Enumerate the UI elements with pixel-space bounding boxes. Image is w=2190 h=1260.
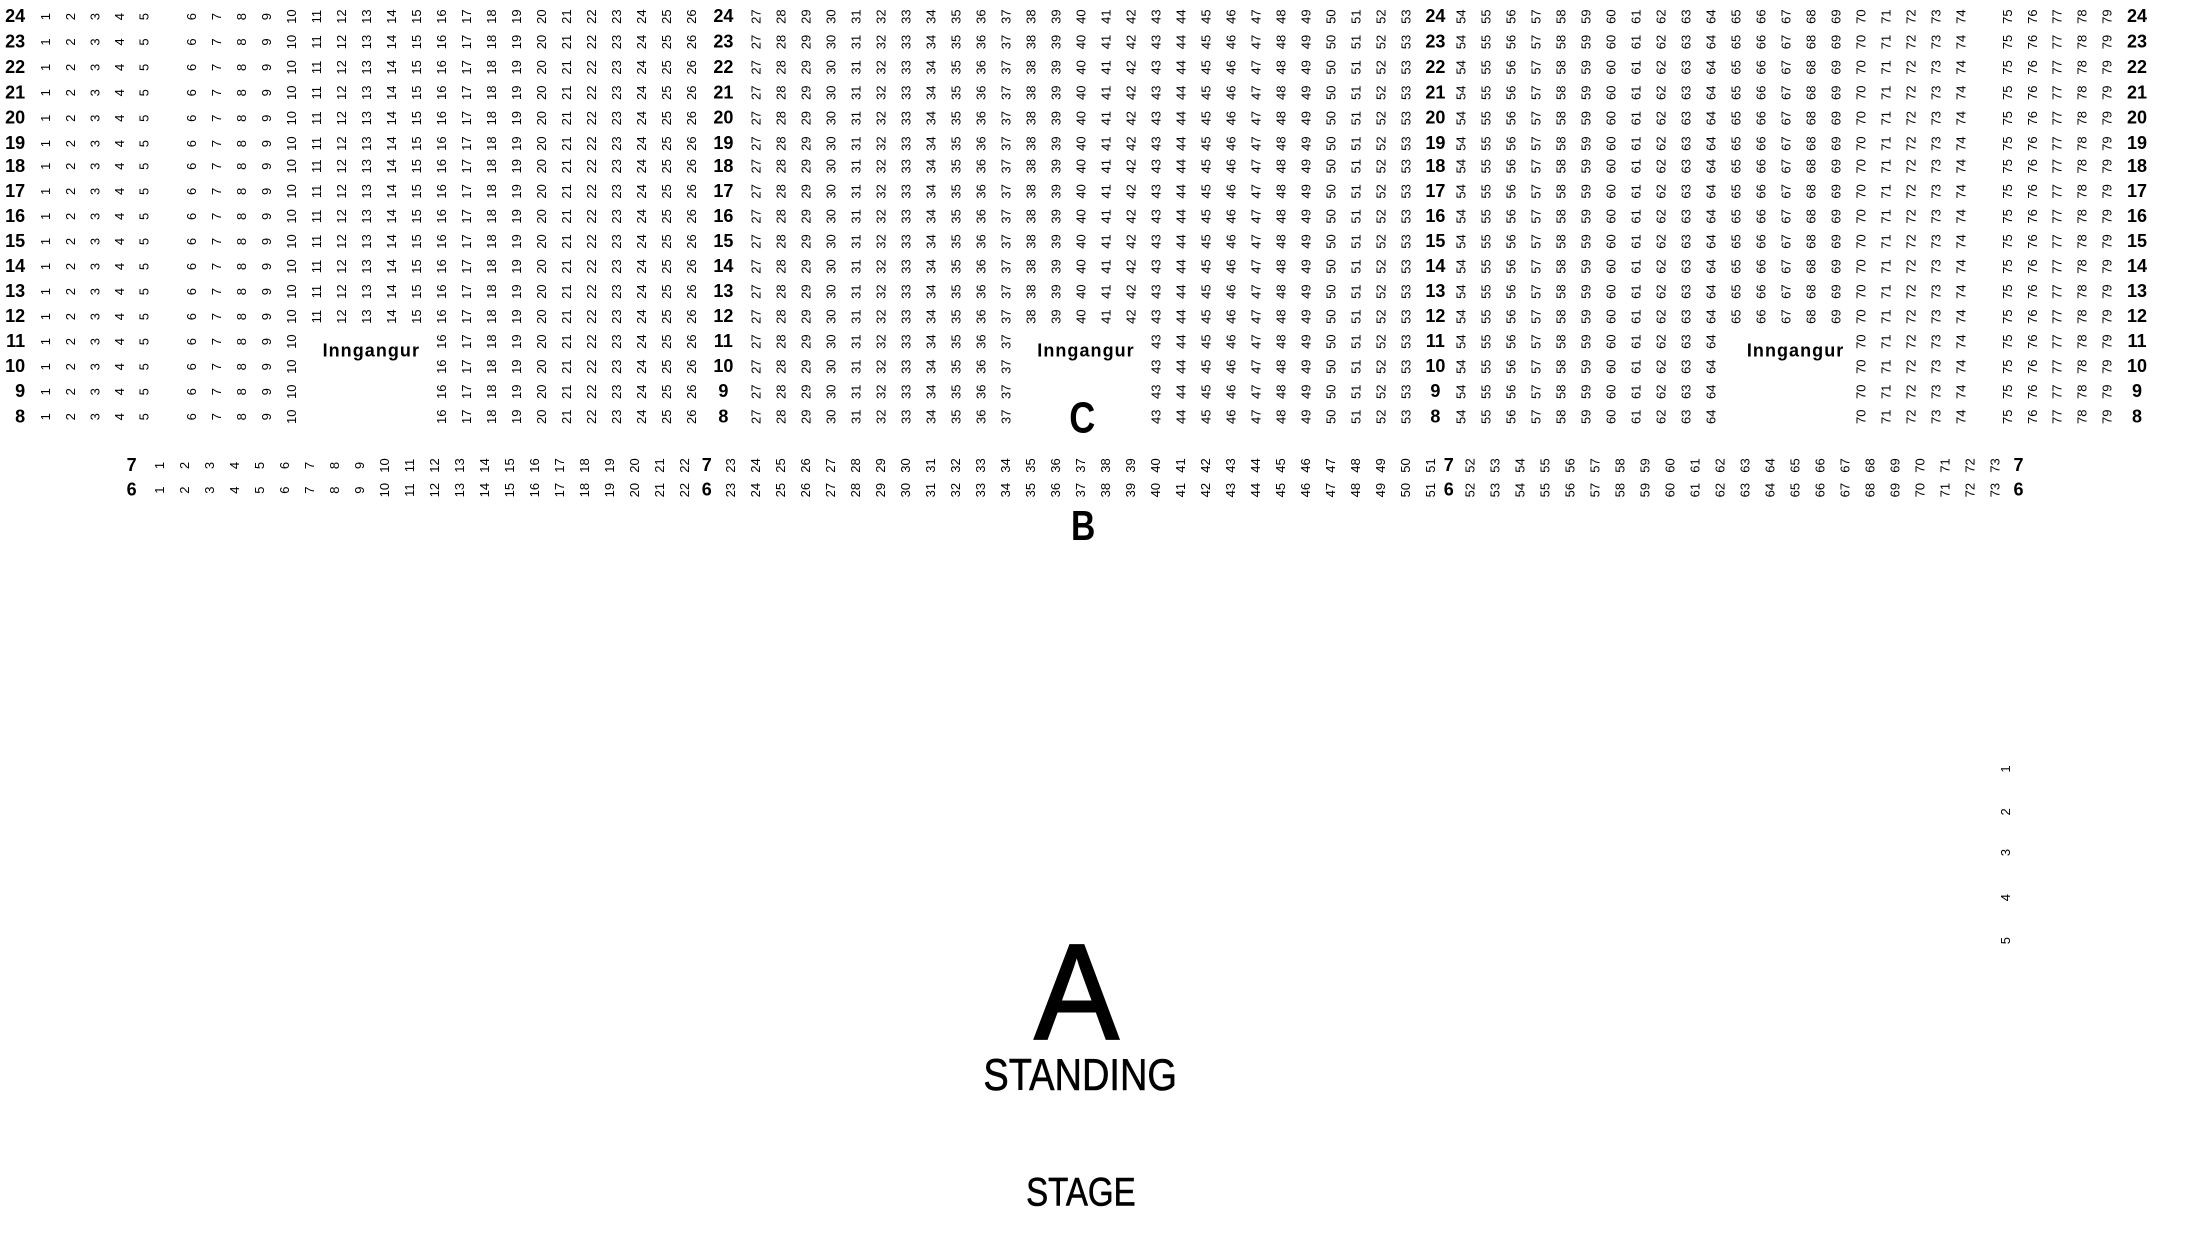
- svg-text:16: 16: [5, 206, 25, 226]
- svg-text:10: 10: [2127, 356, 2147, 376]
- svg-text:10: 10: [5, 356, 25, 376]
- svg-text:11: 11: [1426, 331, 1445, 351]
- svg-text:22: 22: [713, 57, 733, 77]
- svg-text:8: 8: [2132, 406, 2142, 426]
- svg-text:24: 24: [1425, 6, 1445, 26]
- svg-text:12: 12: [1425, 306, 1445, 326]
- svg-text:13: 13: [5, 281, 25, 301]
- svg-text:8: 8: [1430, 406, 1440, 426]
- svg-text:19: 19: [1425, 133, 1445, 153]
- svg-text:24: 24: [5, 6, 25, 26]
- svg-text:STAGE: STAGE: [1026, 1171, 1136, 1215]
- svg-text:19: 19: [713, 133, 733, 153]
- svg-text:19: 19: [2127, 133, 2147, 153]
- svg-text:18: 18: [713, 156, 733, 176]
- svg-text:9: 9: [15, 381, 25, 401]
- svg-text:8: 8: [718, 406, 728, 426]
- svg-text:24: 24: [713, 6, 733, 26]
- svg-text:6: 6: [1444, 480, 1454, 500]
- svg-text:Inngangur: Inngangur: [1037, 340, 1134, 360]
- svg-text:9: 9: [2132, 381, 2142, 401]
- svg-text:123456789101112131415161718192: 1234567891011121314151617181920212223242…: [152, 483, 2002, 497]
- svg-text:13: 13: [1425, 281, 1445, 301]
- svg-text:12: 12: [5, 306, 25, 326]
- svg-text:Inngangur: Inngangur: [323, 340, 420, 360]
- svg-text:15: 15: [2127, 231, 2147, 251]
- svg-text:14: 14: [5, 256, 25, 276]
- svg-text:14: 14: [713, 256, 733, 276]
- svg-text:A: A: [1034, 916, 1119, 1068]
- svg-text:19: 19: [5, 133, 25, 153]
- svg-text:23: 23: [5, 32, 25, 52]
- svg-text:14: 14: [1425, 256, 1445, 276]
- svg-text:B: B: [1071, 502, 1095, 549]
- svg-text:8: 8: [15, 406, 25, 426]
- svg-text:10: 10: [1425, 356, 1445, 376]
- svg-text:18: 18: [1425, 156, 1445, 176]
- svg-text:7: 7: [127, 455, 137, 475]
- svg-text:15: 15: [5, 231, 25, 251]
- svg-text:21: 21: [713, 82, 733, 102]
- svg-text:21: 21: [5, 82, 25, 102]
- svg-text:16: 16: [1425, 206, 1445, 226]
- svg-text:22: 22: [2127, 57, 2147, 77]
- svg-text:21: 21: [1425, 82, 1445, 102]
- svg-text:20: 20: [2127, 108, 2147, 128]
- svg-text:24: 24: [2127, 6, 2147, 26]
- svg-text:23: 23: [1425, 32, 1445, 52]
- svg-text:15: 15: [713, 231, 733, 251]
- svg-text:7: 7: [1444, 455, 1454, 475]
- svg-text:17: 17: [713, 181, 733, 201]
- svg-text:18: 18: [5, 156, 25, 176]
- svg-text:22: 22: [5, 57, 25, 77]
- svg-text:23: 23: [2127, 32, 2147, 52]
- svg-text:123456789101112131415161718192: 1234567891011121314151617181920212223242…: [152, 458, 2002, 472]
- svg-text:11: 11: [714, 331, 733, 351]
- svg-text:6: 6: [127, 480, 137, 500]
- svg-text:15: 15: [1425, 231, 1445, 251]
- svg-text:23: 23: [713, 32, 733, 52]
- svg-text:12: 12: [2127, 306, 2147, 326]
- svg-text:STANDING: STANDING: [983, 1050, 1177, 1100]
- svg-text:7: 7: [702, 455, 712, 475]
- svg-text:22: 22: [1425, 57, 1445, 77]
- svg-text:9: 9: [1430, 381, 1440, 401]
- svg-text:10: 10: [713, 356, 733, 376]
- svg-text:C: C: [1069, 394, 1095, 443]
- svg-text:7: 7: [2013, 455, 2023, 475]
- svg-text:18: 18: [2127, 156, 2147, 176]
- svg-text:6: 6: [702, 480, 712, 500]
- svg-text:20: 20: [1425, 108, 1445, 128]
- svg-text:21: 21: [2127, 82, 2147, 102]
- svg-text:16: 16: [2127, 206, 2147, 226]
- svg-text:11: 11: [2127, 331, 2146, 351]
- svg-text:Inngangur: Inngangur: [1747, 340, 1844, 360]
- svg-text:17: 17: [2127, 181, 2147, 201]
- svg-text:11: 11: [6, 331, 25, 351]
- svg-text:13: 13: [713, 281, 733, 301]
- svg-text:20: 20: [5, 108, 25, 128]
- svg-text:6: 6: [2013, 480, 2023, 500]
- svg-text:17: 17: [5, 181, 25, 201]
- svg-text:9: 9: [718, 381, 728, 401]
- svg-text:16: 16: [713, 206, 733, 226]
- svg-text:20: 20: [713, 108, 733, 128]
- svg-text:17: 17: [1425, 181, 1445, 201]
- svg-text:13: 13: [2127, 281, 2147, 301]
- svg-text:12: 12: [713, 306, 733, 326]
- svg-text:14: 14: [2127, 256, 2147, 276]
